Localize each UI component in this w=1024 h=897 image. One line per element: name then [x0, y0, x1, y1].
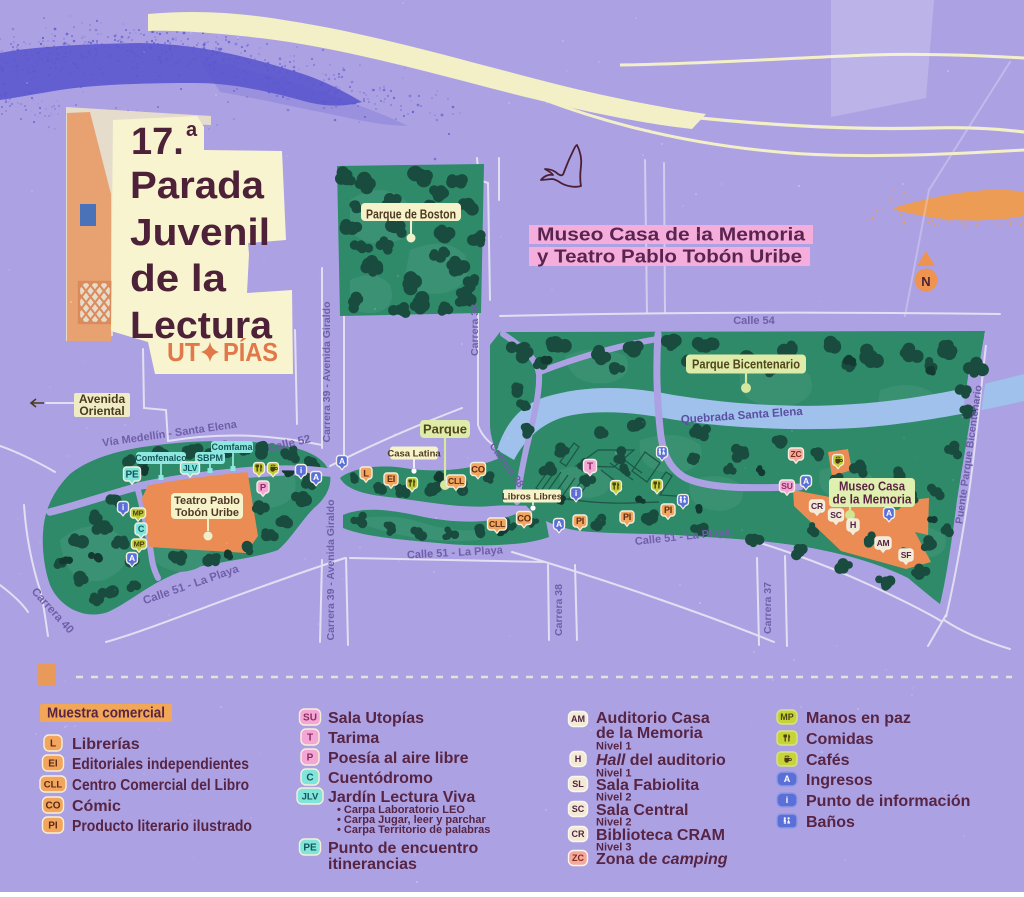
svg-text:Casa Latina: Casa Latina	[387, 448, 441, 459]
svg-text:CLL: CLL	[489, 519, 505, 529]
svg-text:i: i	[575, 488, 577, 498]
svg-text:EI: EI	[48, 759, 58, 770]
svg-text:SL: SL	[572, 779, 584, 789]
svg-text:CO: CO	[471, 464, 485, 475]
svg-text:UT: UT	[167, 337, 200, 367]
svg-text:SC: SC	[572, 804, 585, 814]
svg-text:P: P	[307, 753, 314, 764]
svg-text:itinerancias: itinerancias	[328, 856, 417, 873]
svg-text:CLL: CLL	[448, 476, 464, 486]
svg-text:Carrera 39 - Avenida Giraldo: Carrera 39 - Avenida Giraldo	[321, 301, 333, 442]
svg-text:i: i	[300, 465, 302, 475]
svg-text:MP: MP	[134, 540, 145, 549]
svg-text:C: C	[138, 524, 145, 534]
svg-text:Oriental: Oriental	[79, 404, 124, 418]
svg-text:SU: SU	[303, 713, 317, 724]
svg-text:PI: PI	[576, 516, 584, 526]
svg-text:• Carpa Territorio de palabra: • Carpa Territorio de palabras	[337, 824, 490, 836]
svg-text:Cafés: Cafés	[806, 752, 850, 769]
svg-text:Centro Comercial del Libro: Centro Comercial del Libro	[72, 777, 249, 794]
svg-text:C: C	[306, 773, 313, 784]
svg-text:L: L	[363, 468, 369, 479]
svg-text:EI: EI	[387, 474, 395, 484]
svg-text:A: A	[886, 508, 892, 518]
svg-text:Parque Bicentenario: Parque Bicentenario	[692, 357, 800, 372]
svg-text:Cuentódromo: Cuentódromo	[328, 770, 433, 787]
svg-text:PE: PE	[126, 470, 139, 481]
svg-text:Ingresos: Ingresos	[806, 772, 873, 789]
svg-text:Tarima: Tarima	[328, 730, 379, 747]
svg-text:H: H	[850, 520, 856, 530]
svg-text:i: i	[122, 502, 124, 512]
svg-text:Calle 54: Calle 54	[733, 315, 775, 327]
svg-text:T: T	[587, 462, 593, 473]
svg-text:Museo Casa de la Memoria: Museo Casa de la Memoria	[537, 225, 806, 245]
svg-text:Carrera 38: Carrera 38	[469, 304, 481, 356]
svg-text:CLL: CLL	[44, 779, 63, 790]
svg-text:MP: MP	[133, 509, 144, 518]
svg-text:H: H	[575, 754, 582, 764]
svg-text:Teatro Pablo: Teatro Pablo	[174, 495, 240, 507]
svg-text:Librerías: Librerías	[72, 736, 140, 753]
svg-text:SU: SU	[781, 481, 792, 491]
svg-text:CR: CR	[572, 829, 585, 839]
svg-text:PE: PE	[303, 843, 317, 854]
svg-text:P: P	[260, 482, 267, 493]
svg-text:de la Memoria: de la Memoria	[596, 725, 703, 742]
svg-text:17.: 17.	[131, 121, 184, 163]
svg-text:Punto de información: Punto de información	[806, 793, 970, 810]
svg-text:SBPM: SBPM	[197, 453, 223, 463]
svg-text:Punto de encuentro: Punto de encuentro	[328, 840, 478, 857]
svg-text:PI: PI	[48, 821, 58, 832]
svg-text:PI: PI	[664, 505, 672, 515]
svg-text:Comidas: Comidas	[806, 731, 874, 748]
svg-text:Baños: Baños	[806, 814, 855, 831]
svg-text:Muestra comercial: Muestra comercial	[47, 705, 165, 722]
svg-text:A: A	[803, 476, 809, 486]
svg-text:PÍAS: PÍAS	[223, 337, 278, 367]
svg-text:CR: CR	[811, 501, 823, 511]
svg-text:ZC: ZC	[791, 449, 802, 459]
svg-text:Sala Utopías: Sala Utopías	[328, 710, 424, 727]
svg-text:Cómic: Cómic	[72, 798, 121, 815]
svg-text:CO: CO	[46, 801, 61, 812]
svg-text:a: a	[186, 119, 198, 141]
svg-text:Comfenalco: Comfenalco	[135, 453, 187, 463]
svg-text:A: A	[784, 774, 791, 784]
svg-text:CO: CO	[517, 513, 531, 524]
svg-text:Juvenil: Juvenil	[130, 212, 270, 254]
svg-text:A: A	[556, 519, 562, 529]
svg-text:Tobón Uribe: Tobón Uribe	[175, 507, 239, 519]
svg-text:SC: SC	[830, 510, 841, 520]
svg-text:ZC: ZC	[572, 853, 584, 863]
svg-text:A: A	[129, 553, 135, 563]
svg-text:i: i	[786, 795, 789, 805]
svg-text:y Teatro Pablo Tobón Uribe: y Teatro Pablo Tobón Uribe	[537, 247, 802, 267]
svg-text:AM: AM	[571, 714, 585, 724]
svg-text:Nivel 1: Nivel 1	[596, 741, 631, 753]
svg-text:PI: PI	[623, 512, 631, 522]
svg-text:de la: de la	[130, 258, 227, 300]
svg-text:Manos en paz: Manos en paz	[806, 710, 911, 727]
svg-text:Hall del auditorio: Hall del auditorio	[596, 752, 726, 769]
svg-text:A: A	[313, 472, 319, 482]
svg-text:MP: MP	[780, 712, 794, 722]
svg-text:Parque de Boston: Parque de Boston	[366, 208, 456, 222]
svg-text:T: T	[307, 733, 313, 744]
svg-text:Libros Libres: Libros Libres	[502, 491, 562, 502]
svg-text:Poesía al aire libre: Poesía al aire libre	[328, 750, 469, 767]
svg-text:Editoriales independientes: Editoriales independientes	[72, 756, 249, 773]
svg-text:Parque: Parque	[423, 422, 467, 437]
svg-text:JLV: JLV	[183, 463, 198, 473]
svg-text:Carrera 39 - Avenida Giraldo: Carrera 39 - Avenida Giraldo	[325, 499, 337, 640]
svg-text:Parada: Parada	[130, 165, 265, 207]
svg-text:Museo Casa: Museo Casa	[839, 480, 906, 494]
svg-text:Zona de camping: Zona de camping	[596, 851, 728, 868]
svg-text:Carrera 38: Carrera 38	[553, 584, 565, 636]
svg-text:Comfama: Comfama	[211, 442, 253, 452]
svg-text:de la Memoria: de la Memoria	[833, 493, 913, 507]
svg-text:N: N	[921, 274, 930, 289]
svg-text:JLV: JLV	[302, 791, 319, 802]
svg-text:SF: SF	[901, 550, 911, 560]
svg-text:AM: AM	[877, 538, 890, 548]
svg-text:Producto literario ilustrado: Producto literario ilustrado	[72, 818, 252, 835]
svg-text:A: A	[339, 456, 345, 466]
svg-text:L: L	[50, 739, 56, 750]
svg-text:Carrera 37: Carrera 37	[762, 582, 774, 634]
